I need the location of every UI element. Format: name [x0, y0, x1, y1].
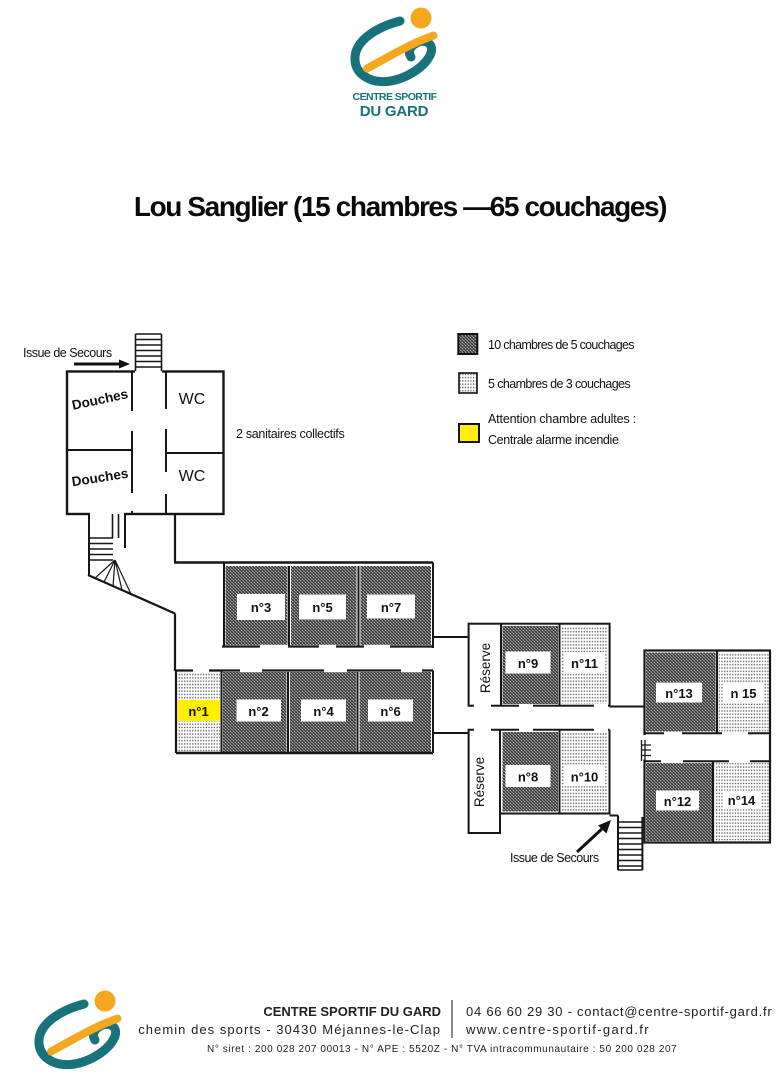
svg-text:Douches: Douches: [71, 466, 130, 490]
svg-text:n°10: n°10: [571, 770, 599, 785]
svg-text:Douches: Douches: [70, 386, 129, 413]
svg-text:n°12: n°12: [664, 794, 692, 809]
svg-text:DU GARD: DU GARD: [360, 103, 429, 120]
svg-text:n°1: n°1: [188, 704, 208, 719]
svg-text:Réserve: Réserve: [472, 757, 487, 807]
svg-text:Issue de Secours: Issue de Secours: [23, 346, 112, 360]
svg-text:Attention chambre adultes :: Attention chambre adultes :: [488, 412, 636, 426]
svg-text:n°5: n°5: [312, 600, 332, 615]
svg-text:10 chambres de 5 couchages: 10 chambres de 5 couchages: [488, 338, 634, 352]
svg-text:n°8: n°8: [518, 770, 538, 785]
svg-text:n°13: n°13: [665, 686, 693, 701]
svg-text:2 sanitaires collectifs: 2 sanitaires collectifs: [236, 427, 344, 441]
svg-text:Réserve: Réserve: [478, 643, 493, 693]
svg-text:5 chambres de 3 couchages: 5 chambres de 3 couchages: [488, 377, 630, 391]
svg-text:WC: WC: [179, 468, 206, 485]
svg-text:n°14: n°14: [728, 793, 756, 808]
svg-text:n°11: n°11: [571, 656, 598, 671]
svg-text:n°4: n°4: [313, 704, 334, 719]
svg-text:CENTRE SPORTIF: CENTRE SPORTIF: [353, 91, 438, 103]
svg-text:n°6: n°6: [380, 704, 400, 719]
svg-text:Issue de Secours: Issue de Secours: [510, 851, 599, 865]
svg-text:n°7: n°7: [381, 600, 401, 615]
svg-text:Centrale alarme incendie: Centrale alarme incendie: [488, 433, 619, 447]
svg-text:WC: WC: [179, 391, 206, 408]
svg-text:n°9: n°9: [518, 656, 538, 671]
svg-text:n 15: n 15: [730, 686, 756, 701]
svg-text:n°2: n°2: [248, 704, 268, 719]
svg-text:n°3: n°3: [251, 600, 271, 615]
